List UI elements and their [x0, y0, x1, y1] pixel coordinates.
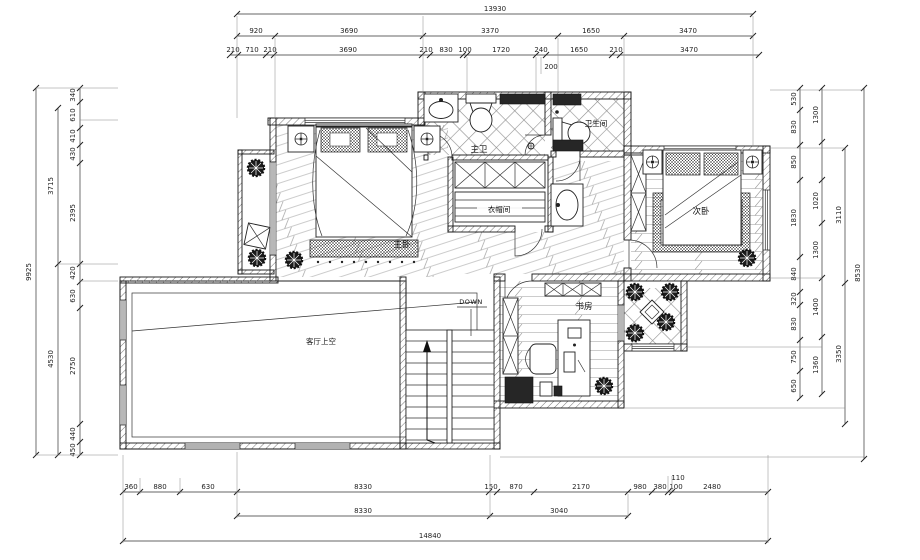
stairs-down-label: DOWN — [459, 298, 482, 306]
window — [185, 443, 240, 449]
dim-label: 3040 — [550, 507, 568, 515]
dim-label: 2750 — [69, 357, 77, 375]
dim-label: 850 — [790, 155, 798, 168]
plant-icon — [627, 325, 643, 341]
nightstand-lamp — [414, 126, 440, 152]
dim-label: 200 — [544, 63, 557, 71]
staircase: DOWN — [406, 298, 494, 443]
dim-label: 880 — [153, 483, 166, 491]
dim-label: 1650 — [582, 27, 600, 35]
bath-shelf — [500, 94, 545, 104]
dim-label: 610 — [69, 108, 77, 121]
dim-label: 830 — [790, 317, 798, 330]
plant-icon — [739, 250, 755, 266]
dim-label: 830 — [790, 120, 798, 133]
dim-label: 3470 — [679, 27, 697, 35]
dim-label: 320 — [790, 292, 798, 305]
window — [120, 300, 126, 340]
dim-label: 3715 — [47, 177, 55, 195]
dim-label: 1020 — [812, 192, 820, 210]
dim-label: 1360 — [812, 356, 820, 374]
extension-lines-left — [36, 88, 118, 455]
corridor-floor — [448, 232, 624, 274]
cloakroom: 衣帽间 — [455, 162, 545, 222]
dim-label: 13930 — [484, 5, 506, 13]
dim-label: 1300 — [812, 106, 820, 124]
dim-label: 210 — [609, 46, 622, 54]
window — [120, 385, 126, 425]
dim-label: 420 — [69, 266, 77, 279]
room-label-master-bedroom: 主卧 — [393, 239, 411, 250]
dim-label: 4530 — [47, 350, 55, 368]
dim-label: 440 — [69, 427, 77, 440]
dim-label: 360 — [124, 483, 137, 491]
dim-label: 710 — [245, 46, 258, 54]
window — [270, 162, 276, 255]
desk — [558, 320, 590, 396]
sink — [424, 94, 458, 122]
dim-label: 8330 — [354, 483, 372, 491]
nightstand-lamp — [643, 150, 662, 174]
dim-label: 14840 — [419, 532, 441, 540]
floor-plan-drawing: 客厅上空 — [0, 0, 920, 560]
window — [632, 344, 674, 351]
plant-icon — [248, 160, 264, 176]
dim-label: 110 — [671, 474, 684, 482]
dim-label: 1720 — [492, 46, 510, 54]
double-bed — [313, 124, 417, 237]
room-label-void: 客厅上空 — [306, 336, 336, 346]
floor-plan-page: 客厅上空 — [0, 0, 920, 560]
desk-chair — [526, 344, 557, 374]
vanity — [551, 184, 583, 226]
dim-label: 3690 — [340, 27, 358, 35]
dim-label: 2395 — [69, 204, 77, 222]
tall-cabinet — [503, 298, 518, 374]
dim-label: 630 — [201, 483, 214, 491]
window — [295, 443, 350, 449]
plant-icon — [627, 284, 643, 300]
dim-label: 1830 — [790, 209, 798, 227]
dim-label: 210 — [419, 46, 432, 54]
room-label-bathroom: 卫生间 — [585, 118, 608, 128]
dim-label: 2480 — [703, 483, 721, 491]
bath-cabinet — [553, 94, 581, 105]
window — [618, 305, 624, 341]
stair-divider — [447, 330, 452, 443]
extension-lines-bottom — [123, 452, 768, 543]
dim-label: 8330 — [354, 507, 372, 515]
plant-icon — [596, 378, 612, 394]
window — [763, 190, 770, 250]
dim-label: 340 — [69, 88, 77, 101]
dim-label: 3370 — [481, 27, 499, 35]
dim-label: 3470 — [680, 46, 698, 54]
plant-icon — [662, 284, 678, 300]
room-label-study: 书房 — [575, 301, 592, 312]
dim-label: 1400 — [812, 298, 820, 316]
shower-step — [553, 140, 583, 151]
dim-label: 9925 — [25, 263, 33, 281]
dim-label: 2170 — [572, 483, 590, 491]
dim-label: 750 — [790, 350, 798, 363]
dim-label: 240 — [534, 46, 547, 54]
plant-icon — [249, 250, 265, 266]
nightstand-lamp — [743, 150, 762, 174]
dim-label: 830 — [439, 46, 452, 54]
dim-label: 210 — [263, 46, 276, 54]
dimensions-bottom: 360 880 630 8330 150 870 2170 980 380 10… — [120, 452, 771, 544]
plant-icon — [286, 252, 302, 268]
dim-label: 870 — [509, 483, 522, 491]
dim-label: 1650 — [570, 46, 588, 54]
dim-label: 100 — [669, 483, 682, 491]
nightstand-lamp — [288, 126, 314, 152]
room-label-second-bedroom: 次卧 — [692, 206, 710, 217]
dim-label: 8530 — [854, 264, 862, 282]
dim-label: 210 — [226, 46, 239, 54]
floor-drain — [528, 143, 534, 149]
dim-label: 980 — [633, 483, 646, 491]
planter-box — [244, 223, 270, 249]
dim-label: 100 — [458, 46, 471, 54]
left-balcony — [244, 160, 270, 266]
room-label-cloakroom: 衣帽间 — [488, 204, 511, 214]
dimensions-left: 340 610 410 430 2395 420 630 2750 440 45… — [25, 85, 118, 458]
dim-label: 840 — [790, 267, 798, 280]
dim-label: 530 — [790, 92, 798, 105]
dim-label: 3690 — [339, 46, 357, 54]
bed — [663, 150, 741, 245]
stool — [554, 386, 562, 396]
side-table — [540, 382, 552, 396]
void-outline — [120, 281, 406, 449]
dim-label: 430 — [69, 147, 77, 160]
dim-label: 3350 — [835, 345, 843, 363]
dim-label: 3110 — [835, 206, 843, 224]
dim-label: 410 — [69, 129, 77, 142]
room-label-master-bath: 主卫 — [470, 144, 488, 155]
dim-label: 630 — [69, 289, 77, 302]
cabinet-dark — [505, 377, 533, 403]
dim-label: 450 — [69, 443, 77, 456]
dim-label: 380 — [653, 483, 666, 491]
bookshelf-top — [545, 283, 601, 296]
plant-icon — [658, 314, 674, 330]
dim-label: 150 — [484, 483, 497, 491]
dim-label: 1300 — [812, 241, 820, 259]
wardrobe-cabinets — [455, 162, 545, 188]
dim-label: 650 — [790, 379, 798, 392]
dim-label: 920 — [249, 27, 262, 35]
